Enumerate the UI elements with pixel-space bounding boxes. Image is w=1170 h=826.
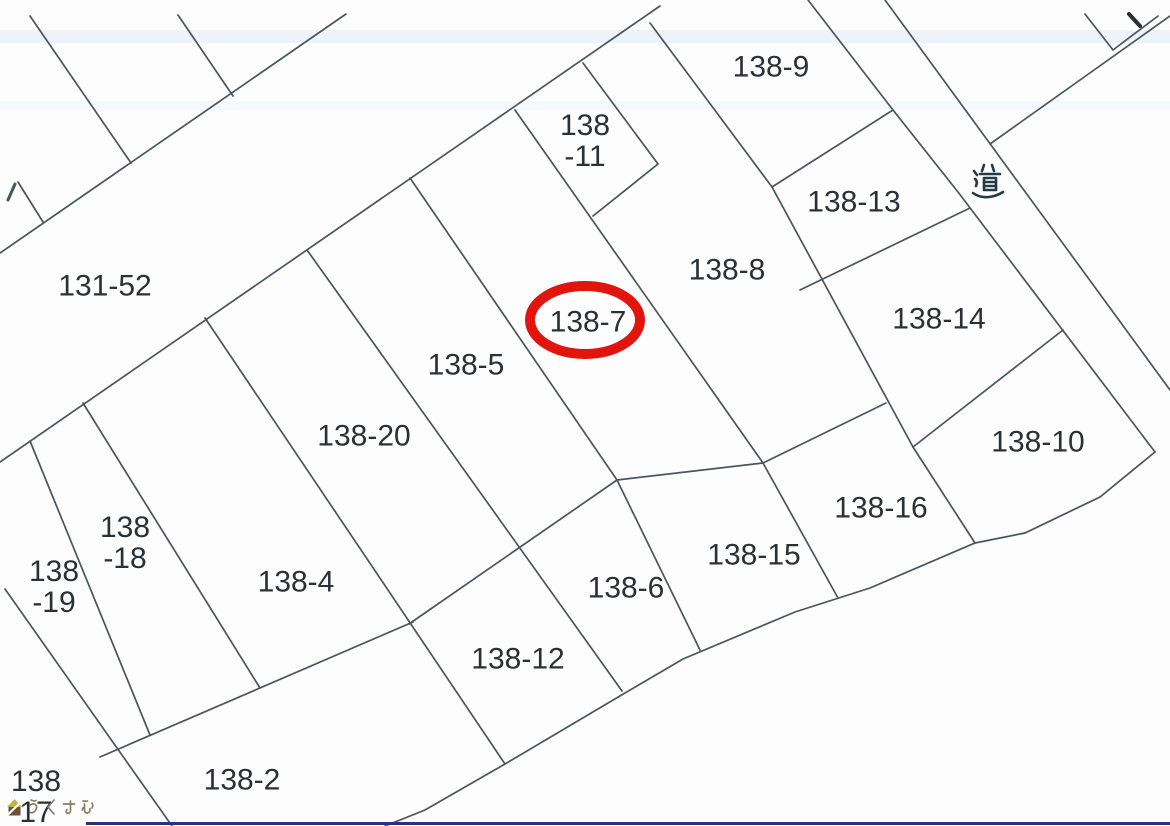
boundary-line (30, 16, 131, 163)
parcel-label-138-17: 138 17 (11, 766, 61, 826)
boundary-line (0, 14, 346, 253)
parcel-label-138-2: 138-2 (204, 765, 281, 796)
hiragana-ra-icon (25, 798, 41, 816)
scan-artifact-line (86, 822, 1170, 825)
parcel-label-138-15: 138-15 (707, 540, 800, 571)
parcel-label-138-4: 138-4 (258, 567, 335, 598)
parcel-label-138-8: 138-8 (689, 255, 766, 286)
boundary-line (763, 403, 886, 463)
parcel-label-131-52: 131-52 (58, 271, 151, 302)
parcel-label-138-16: 138-16 (834, 493, 927, 524)
cadastral-map: 131-52 138 -11 138-9 138-13 138-8 138-7 … (0, 0, 1170, 826)
outer-boundary-line (385, 452, 1155, 826)
parcel-label-138-14: 138-14 (892, 304, 985, 335)
parcel-label-line: 138 (11, 766, 61, 797)
boundary-line (178, 15, 233, 96)
boundary-line (990, 16, 1170, 144)
parcel-label-line: 138 (100, 512, 150, 543)
parcel-label-line: -19 (29, 587, 79, 618)
boundary-line (650, 23, 913, 447)
boundary-tick (8, 184, 15, 200)
boundary-line (18, 182, 43, 222)
parcel-label-138-19: 138 -19 (29, 556, 79, 618)
parcel-label-line: -18 (100, 543, 150, 574)
parcel-label-line: 138 (560, 110, 610, 141)
parcel-label-138-5: 138-5 (428, 350, 505, 381)
parcel-label-138-9: 138-9 (733, 52, 810, 83)
house-logo-icon (6, 798, 23, 817)
boundary-line (409, 480, 617, 624)
parcel-label-line: -11 (560, 141, 610, 172)
boundary-line (800, 208, 970, 290)
parcel-label-line: 138 (29, 556, 79, 587)
watermark: らくすむ (6, 798, 95, 817)
hiragana-su-icon (61, 798, 77, 816)
boundary-line (515, 110, 763, 463)
parcel-label-138-7: 138-7 (550, 307, 627, 338)
parcel-label-138-10: 138-10 (991, 427, 1084, 458)
boundary-line (617, 480, 700, 650)
parcel-label-138-6: 138-6 (588, 573, 665, 604)
boundary-line (100, 622, 413, 757)
road-edge-line (808, 0, 1155, 452)
hiragana-ku-icon (43, 798, 59, 816)
boundary-line (617, 463, 763, 480)
parcel-label-138-11: 138 -11 (560, 110, 610, 172)
parcel-label-138-12: 138-12 (471, 644, 564, 675)
hiragana-mu-icon (79, 798, 95, 816)
road-kanji-icon (973, 165, 1003, 197)
parcel-label-138-20: 138-20 (317, 421, 410, 452)
boundary-line (772, 110, 893, 187)
boundary-tick (1129, 14, 1140, 26)
parcel-label-138-18: 138 -18 (100, 512, 150, 574)
boundary-line (0, 6, 660, 462)
parcel-label-138-13: 138-13 (807, 187, 900, 218)
boundary-line (763, 463, 838, 598)
boundary-line (205, 318, 505, 764)
